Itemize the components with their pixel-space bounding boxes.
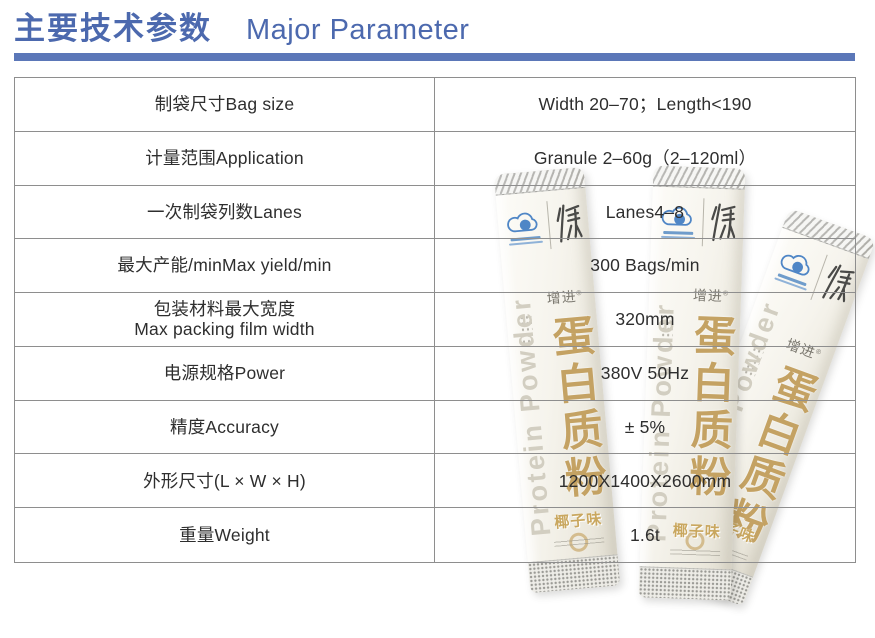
accuracy-value-cell: ± 5% [435,401,855,455]
bag-size-label-cell: 制袋尺寸Bag size [15,78,435,132]
page-title-chinese: 主要技术参数 [14,10,212,49]
max-yield-value-cell: 300 Bags/min [435,239,855,293]
dimensions-label-cell: 外形尺寸(L × W × H) [15,454,435,508]
max-yield-label-cell: 最大产能/minMax yield/min [15,239,435,293]
page-title-english: Major Parameter [246,14,469,47]
weight-label: 重量Weight [179,525,270,546]
film-width-label-zh: 包装材料最大宽度 [154,299,296,320]
lanes-label-cell: 一次制袋列数Lanes [15,186,435,240]
bag-size-value-cell: Width 20–70；Length<190 [435,78,855,132]
accuracy-label-cell: 精度Accuracy [15,401,435,455]
spec-sheet-page: 主要技术参数 Major Parameter 增进® 蛋白质粉 Protein … [0,0,875,638]
power-label-cell: 电源规格Power [15,347,435,401]
lanes-value: Lanes4–8 [606,202,684,223]
film-width-value-cell: 320mm [435,293,855,347]
weight-label-cell: 重量Weight [15,508,435,562]
weight-value-cell: 1.6t [435,508,855,562]
dimensions-value-cell: 1200X1400X2600mm [435,454,855,508]
film-width-label-en: Max packing film width [134,319,314,340]
application-label-cell: 计量范围Application [15,132,435,186]
major-parameter-table: 制袋尺寸Bag size Width 20–70；Length<190 计量范围… [14,77,856,563]
film-width-value: 320mm [615,309,674,330]
application-label: 计量范围Application [145,148,304,169]
bag-size-value: Width 20–70；Length<190 [538,94,751,115]
page-title: 主要技术参数 Major Parameter [14,10,855,49]
weight-value: 1.6t [630,525,660,546]
application-value: Granule 2–60g（2–120ml） [534,148,756,169]
accuracy-value: ± 5% [625,417,666,438]
pack-crimp-bottom [638,566,731,600]
lanes-value-cell: Lanes4–8 [435,186,855,240]
power-label: 电源规格Power [164,363,285,384]
application-value-cell: Granule 2–60g（2–120ml） [435,132,855,186]
lanes-label: 一次制袋列数Lanes [147,202,302,223]
max-yield-value: 300 Bags/min [590,255,699,276]
power-value: 380V 50Hz [601,363,689,384]
film-width-label-cell: 包装材料最大宽度Max packing film width [15,293,435,347]
max-yield-label: 最大产能/minMax yield/min [117,255,331,276]
dimensions-value: 1200X1400X2600mm [559,471,732,492]
power-value-cell: 380V 50Hz [435,347,855,401]
title-underline-bar [14,53,855,61]
bag-size-label: 制袋尺寸Bag size [155,94,295,115]
accuracy-label: 精度Accuracy [170,417,279,438]
page-header: 主要技术参数 Major Parameter [14,10,855,61]
dimensions-label: 外形尺寸(L × W × H) [143,471,306,492]
